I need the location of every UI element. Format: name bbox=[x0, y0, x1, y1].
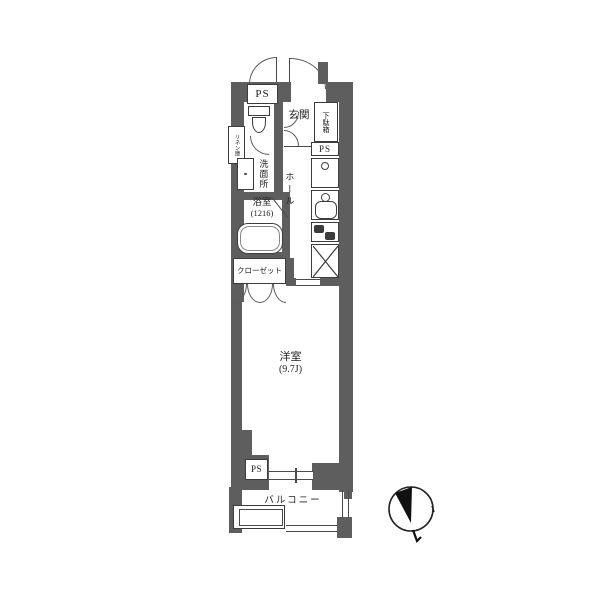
refrigerator-x-icon bbox=[311, 244, 339, 278]
tap-circle bbox=[321, 162, 329, 170]
pipe-space-bottom: PS bbox=[245, 459, 268, 480]
wall-hall-bottom-left bbox=[286, 278, 296, 286]
pipe-space-kitchen-label: PS bbox=[319, 144, 331, 154]
door-arc-icon bbox=[249, 57, 277, 84]
entrance-step-line bbox=[284, 146, 312, 147]
washroom-label: 洗面所 bbox=[258, 148, 268, 200]
sink-basin bbox=[315, 201, 337, 219]
burner bbox=[325, 232, 335, 240]
hatch-inner bbox=[239, 509, 283, 526]
wall-step-a bbox=[231, 430, 252, 458]
pipe-space-kitchen: PS bbox=[311, 142, 339, 156]
door-leaf bbox=[276, 57, 277, 84]
western-room-label: 洋室 bbox=[263, 351, 318, 364]
kitchen-sink-icon bbox=[311, 190, 339, 220]
folding-door-arc bbox=[260, 284, 273, 303]
compass-north-icon bbox=[383, 482, 441, 546]
wall-right bbox=[339, 82, 353, 492]
toilet-icon bbox=[252, 117, 266, 133]
folding-door-arc bbox=[273, 284, 286, 303]
washing-machine-icon bbox=[311, 158, 339, 188]
folding-door-arc bbox=[247, 284, 260, 303]
bathtub-inner bbox=[240, 226, 280, 251]
pipe-space-bottom-label: PS bbox=[251, 464, 262, 474]
balcony-post-bottom bbox=[337, 517, 352, 538]
balcony-rail-right bbox=[342, 490, 349, 518]
door-arc-icon bbox=[284, 130, 299, 146]
pipe-space-top: PS bbox=[247, 84, 278, 104]
closet: クローゼット bbox=[233, 258, 286, 284]
toilet-icon bbox=[248, 106, 270, 116]
pipe-space-top-label: PS bbox=[255, 88, 269, 101]
folding-door-arc bbox=[234, 284, 247, 303]
linen-closet-label: リネン庫 bbox=[233, 134, 239, 156]
stove-icon bbox=[311, 222, 339, 242]
window-mullion bbox=[295, 468, 297, 483]
hall-sliding-door bbox=[296, 279, 320, 286]
bathtub-icon bbox=[237, 223, 283, 254]
washbasin-dot bbox=[244, 173, 247, 176]
floor-plan: 玄関 下駄箱 PS 洗面所 リネン庫 ホール PS 浴室 bbox=[0, 0, 607, 608]
wall-left-room bbox=[231, 302, 242, 432]
burner bbox=[314, 225, 324, 233]
wall-hall-bottom-right bbox=[320, 278, 339, 286]
washbasin-icon bbox=[237, 158, 254, 190]
shoe-cabinet: 下駄箱 bbox=[314, 102, 338, 142]
wall-bottom-right bbox=[312, 463, 340, 490]
sliding-window-icon bbox=[269, 471, 313, 480]
hatch-icon bbox=[233, 505, 285, 529]
shoe-cabinet-label: 下駄箱 bbox=[322, 112, 330, 133]
door-arc-icon bbox=[284, 112, 299, 128]
western-room-size-label: (9.7J) bbox=[263, 364, 318, 376]
closet-label: クローゼット bbox=[237, 267, 282, 276]
balcony-rail-bottom bbox=[286, 525, 337, 532]
hall-label: ホール bbox=[284, 150, 294, 230]
bathroom-size-label: (1216) bbox=[240, 209, 284, 219]
wall-notch bbox=[318, 62, 328, 84]
wall-left-upper-a bbox=[231, 100, 244, 128]
wall-entrance-washroom bbox=[274, 100, 283, 196]
